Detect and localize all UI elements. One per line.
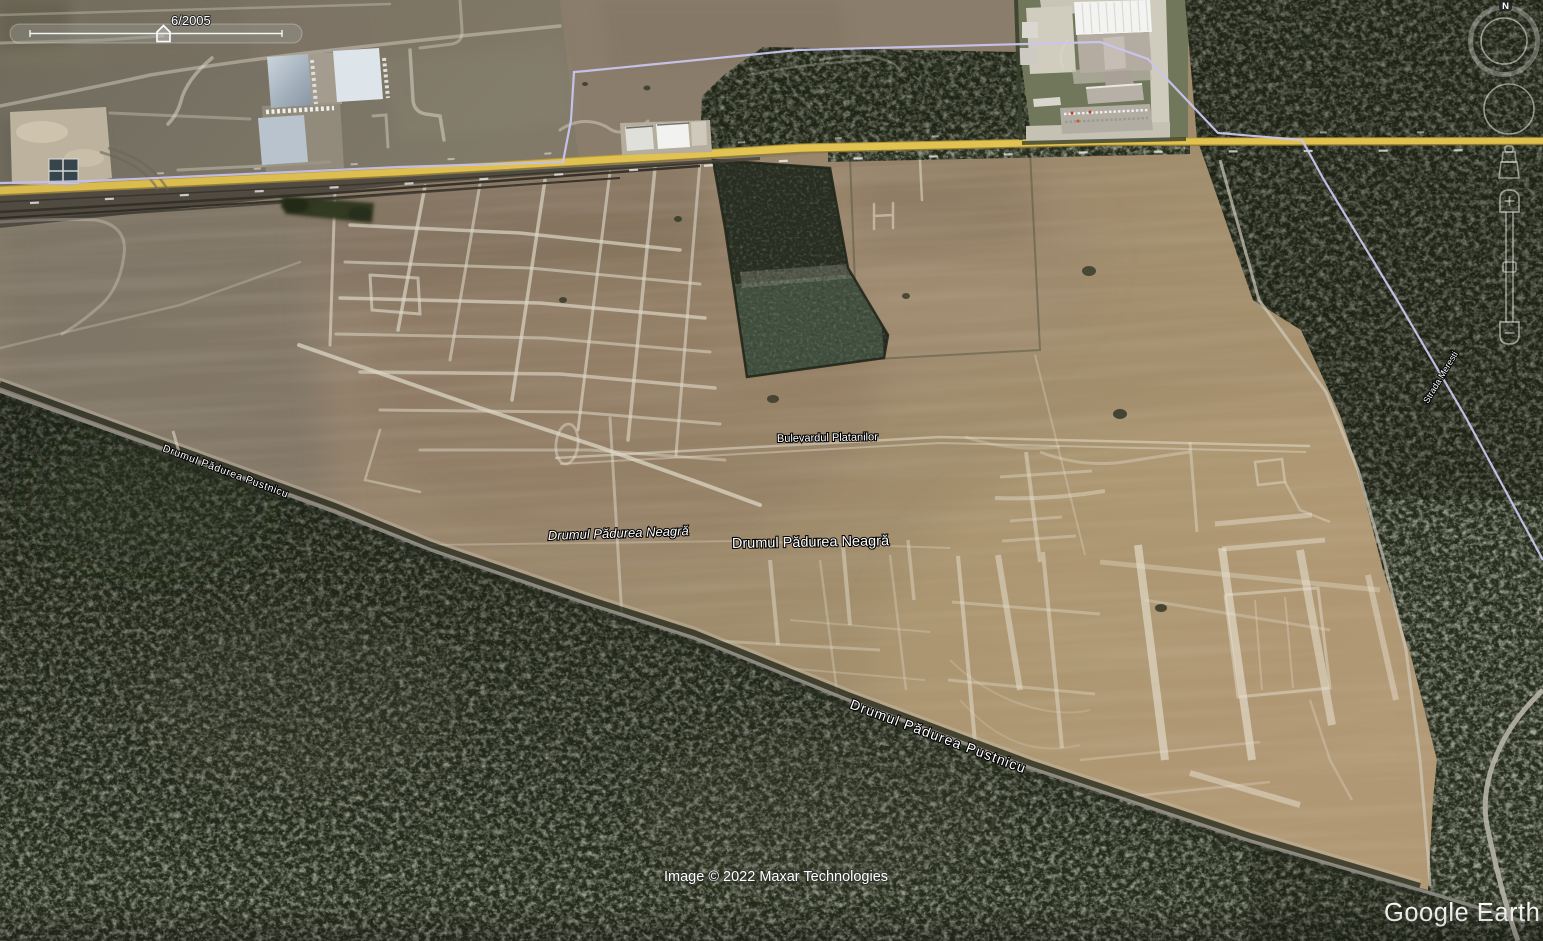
svg-text:6/2005: 6/2005 — [171, 13, 211, 28]
svg-text:N: N — [1502, 1, 1509, 12]
svg-text:Bulevardul Platanilor: Bulevardul Platanilor — [777, 431, 878, 445]
svg-text:Image © 2022 Maxar Technologie: Image © 2022 Maxar Technologies — [664, 869, 888, 885]
svg-text:Drumul Pădurea Neagră: Drumul Pădurea Neagră — [732, 533, 890, 552]
